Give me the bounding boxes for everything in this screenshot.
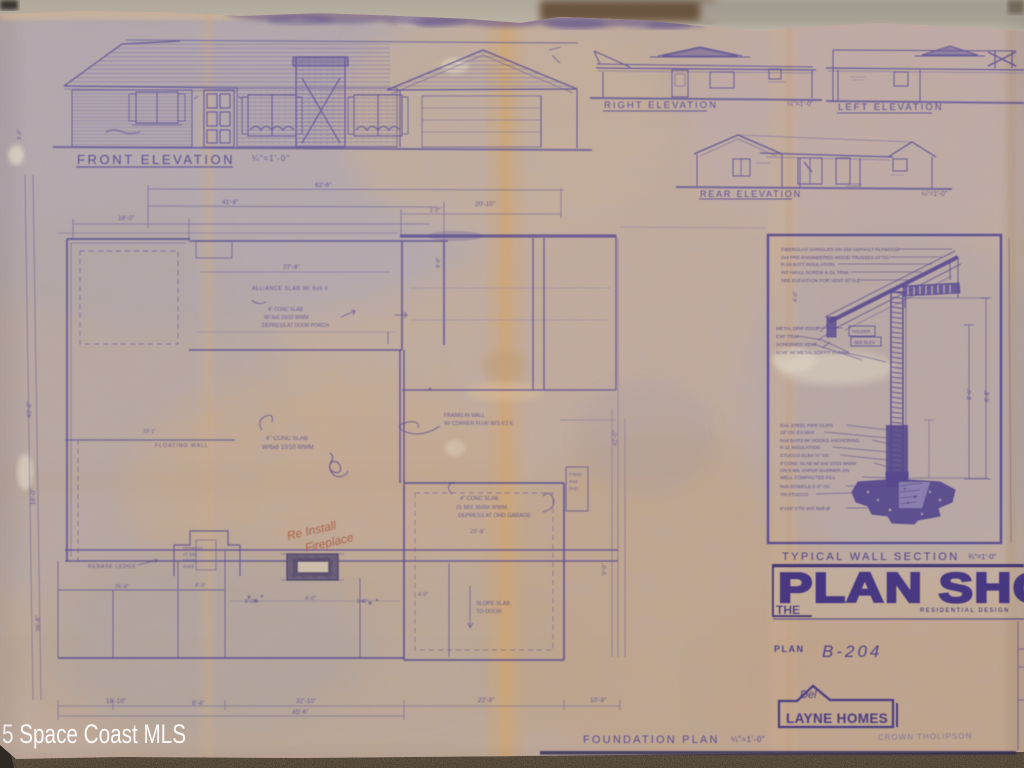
svg-text:R-19 BATT INSULATION: R-19 BATT INSULATION — [781, 262, 835, 268]
svg-text:PLAN: PLAN — [774, 644, 805, 654]
svg-text:PAD: PAD — [569, 486, 579, 491]
svg-text:16'-0": 16'-0" — [30, 488, 37, 505]
svg-text:¾"=1'-0": ¾"=1'-0" — [968, 552, 997, 561]
svg-text:2'-0": 2'-0" — [430, 208, 440, 214]
svg-text:20'-8": 20'-8" — [470, 529, 485, 535]
svg-text:DEPRESS AT OHD GARAGE: DEPRESS AT OHD GARAGE — [458, 513, 531, 519]
svg-text:B-204: B-204 — [822, 642, 882, 661]
svg-text:6'-8": 6'-8" — [985, 390, 991, 402]
svg-text:18'-10": 18'-10" — [106, 698, 127, 705]
svg-text:ALLIANCE SLAB W/ 6x6 #: ALLIANCE SLAB W/ 6x6 # — [252, 286, 329, 292]
svg-text:W/ 6x6 10/10 WWM: W/ 6x6 10/10 WWM — [264, 315, 308, 321]
svg-text:FRONT ELEVATION: FRONT ELEVATION — [77, 152, 235, 167]
svg-text:¼"=1'-0": ¼"=1'-0" — [787, 101, 814, 108]
svg-text:4'x6'8: 4'x6'8 — [183, 564, 194, 569]
svg-text:4"CONC SLAB W/ 6x6 10/10 WWM: 4"CONC SLAB W/ 6x6 10/10 WWM — [780, 461, 856, 467]
svg-text:W/ CORNER FLUE W/S 6'2 E: W/ CORNER FLUE W/S 6'2 E — [444, 421, 514, 427]
svg-text:¾"x6" W/ METAL SOFFIT·FASCIA: ¾"x6" W/ METAL SOFFIT·FASCIA — [776, 350, 850, 356]
svg-text:EXP TRIM: EXP TRIM — [776, 334, 798, 340]
svg-text:4" CONC SLAB: 4" CONC SLAB — [460, 496, 499, 502]
svg-text:LEFT ELEVATION: LEFT ELEVATION — [838, 102, 944, 113]
svg-text:10'-8": 10'-8" — [590, 697, 607, 704]
svg-text:F'PAD: F'PAD — [569, 472, 582, 477]
svg-text:TO DOOR: TO DOOR — [476, 609, 502, 615]
svg-text:¼"=1'-0": ¼"=1'-0" — [252, 154, 290, 163]
svg-text:4'-0": 4'-0" — [305, 596, 316, 602]
svg-text:4'-0": 4'-0" — [418, 592, 428, 598]
svg-text:CROWN THOLIPSON: CROWN THOLIPSON — [878, 731, 973, 742]
svg-text:4" CONC SLAB: 4" CONC SLAB — [268, 307, 304, 313]
svg-text:27'-4": 27'-4" — [283, 264, 300, 271]
svg-text:FOUNDATION PLAN: FOUNDATION PLAN — [583, 734, 720, 746]
svg-text:41'-8": 41'-8" — [222, 199, 239, 206]
svg-text:WELL COMPACTED FILL: WELL COMPACTED FILL — [780, 475, 836, 481]
svg-text:STUCCO ELEV ½" OC: STUCCO ELEV ½" OC — [780, 452, 830, 459]
svg-text:3'-0": 3'-0" — [17, 129, 23, 140]
svg-text:20'-10": 20'-10" — [475, 201, 496, 208]
svg-text:5 Space Coast MLS: 5 Space Coast MLS — [2, 719, 186, 749]
svg-text:W/6x6 10/10 WWM: W/6x6 10/10 WWM — [262, 445, 314, 451]
svg-text:40'-8": 40'-8" — [26, 401, 33, 418]
svg-text:6"x16" FTG W/2 No5 Ø: 6"x16" FTG W/2 No5 Ø — [780, 506, 830, 512]
svg-text:¼"=1'-0": ¼"=1'-0" — [921, 191, 948, 198]
svg-text:2x4 PRE-ENGINEERED WOOD TRUSSE: 2x4 PRE-ENGINEERED WOOD TRUSSES 24"OC — [781, 255, 890, 261]
svg-text:21 MIX 3500# WWM: 21 MIX 3500# WWM — [456, 505, 507, 511]
svg-text:18'-0": 18'-0" — [118, 215, 135, 222]
svg-text:METAL DRIP EDGE: METAL DRIP EDGE — [776, 326, 819, 332]
svg-text:RIGHT ELEVATION: RIGHT ELEVATION — [604, 100, 718, 111]
svg-text:R-11 INSULATION: R-11 INSULATION — [780, 445, 820, 451]
svg-text:DOOR: DOOR — [183, 558, 196, 563]
svg-text:No4 BARS W/ HOOKS ANCHORING: No4 BARS W/ HOOKS ANCHORING — [780, 438, 860, 444]
svg-text:GAL STEEL PIPE CLIPS: GAL STEEL PIPE CLIPS — [780, 423, 833, 429]
svg-text:10'-1": 10'-1" — [143, 429, 156, 435]
svg-text:FLOATING WALL: FLOATING WALL — [155, 443, 209, 449]
svg-text:22'-8": 22'-8" — [478, 697, 495, 704]
svg-text:4'x4': 4'x4' — [569, 479, 578, 484]
svg-text:4'-0": 4'-0" — [793, 291, 799, 302]
svg-text:RESIDENTIAL DESIGN: RESIDENTIAL DESIGN — [920, 608, 1010, 614]
svg-text:No5 DOWELS 6'-0" OC: No5 DOWELS 6'-0" OC — [780, 484, 831, 490]
svg-text:LAYNE HOMES: LAYNE HOMES — [786, 711, 888, 726]
svg-text:16" OC EA WAY: 16" OC EA WAY — [780, 430, 816, 436]
svg-text:DEPRESS: DEPRESS — [183, 546, 203, 551]
svg-text:REBASE LEDGE: REBASE LEDGE — [88, 564, 137, 570]
svg-text:REAR ELEVATION: REAR ELEVATION — [700, 189, 802, 199]
svg-text:ON 6 MIL VAPOR BARRIER ON: ON 6 MIL VAPOR BARRIER ON — [780, 468, 850, 474]
svg-text:SEE ELEVATION FOR VENT STYLE: SEE ELEVATION FOR VENT STYLE — [781, 278, 860, 284]
svg-text:INT+WALL SCREW & GL TRIM: INT+WALL SCREW & GL TRIM — [781, 270, 848, 276]
svg-text:SEE ELEV: SEE ELEV — [854, 340, 875, 345]
svg-text:45'-6": 45'-6" — [292, 709, 309, 716]
svg-text:¼"=1'-0": ¼"=1'-0" — [731, 735, 765, 744]
svg-text:FIBERGLAS SHINGLES ON 15# ASPH: FIBERGLAS SHINGLES ON 15# ASPHALT PLYWOO… — [781, 247, 900, 253]
svg-text:DEPRESS AT DOOR PORCH: DEPRESS AT DOOR PORCH — [262, 323, 329, 329]
svg-text:8'-0": 8'-0" — [967, 388, 973, 400]
svg-text:7/8 STUCCO: 7/8 STUCCO — [780, 492, 809, 498]
svg-text:TYPICAL WALL SECTION: TYPICAL WALL SECTION — [782, 551, 960, 563]
svg-text:62'-6": 62'-6" — [315, 182, 332, 189]
svg-text:FRANKLIN WALL: FRANKLIN WALL — [444, 413, 485, 419]
svg-text:36'-8": 36'-8" — [35, 615, 42, 632]
svg-text:Del: Del — [800, 689, 817, 701]
svg-text:8'-4": 8'-4" — [192, 700, 206, 707]
svg-text:32'-10": 32'-10" — [296, 698, 317, 705]
svg-text:SLOPE SLAB: SLOPE SLAB — [476, 601, 510, 607]
svg-text:SCREENED VENT: SCREENED VENT — [776, 342, 817, 348]
svg-text:PLAN SHO: PLAN SHO — [778, 564, 1024, 611]
svg-text:4'-0": 4'-0" — [195, 583, 206, 589]
svg-text:9'-0": 9'-0" — [436, 257, 442, 268]
svg-text:HOLDER: HOLDER — [852, 329, 870, 334]
svg-text:AT DBL: AT DBL — [183, 552, 198, 557]
svg-text:26'-8": 26'-8" — [115, 584, 129, 590]
svg-text:9'-0": 9'-0" — [602, 563, 608, 575]
svg-text:THE: THE — [776, 603, 800, 617]
svg-text:4" CONC SLAB: 4" CONC SLAB — [266, 436, 308, 442]
